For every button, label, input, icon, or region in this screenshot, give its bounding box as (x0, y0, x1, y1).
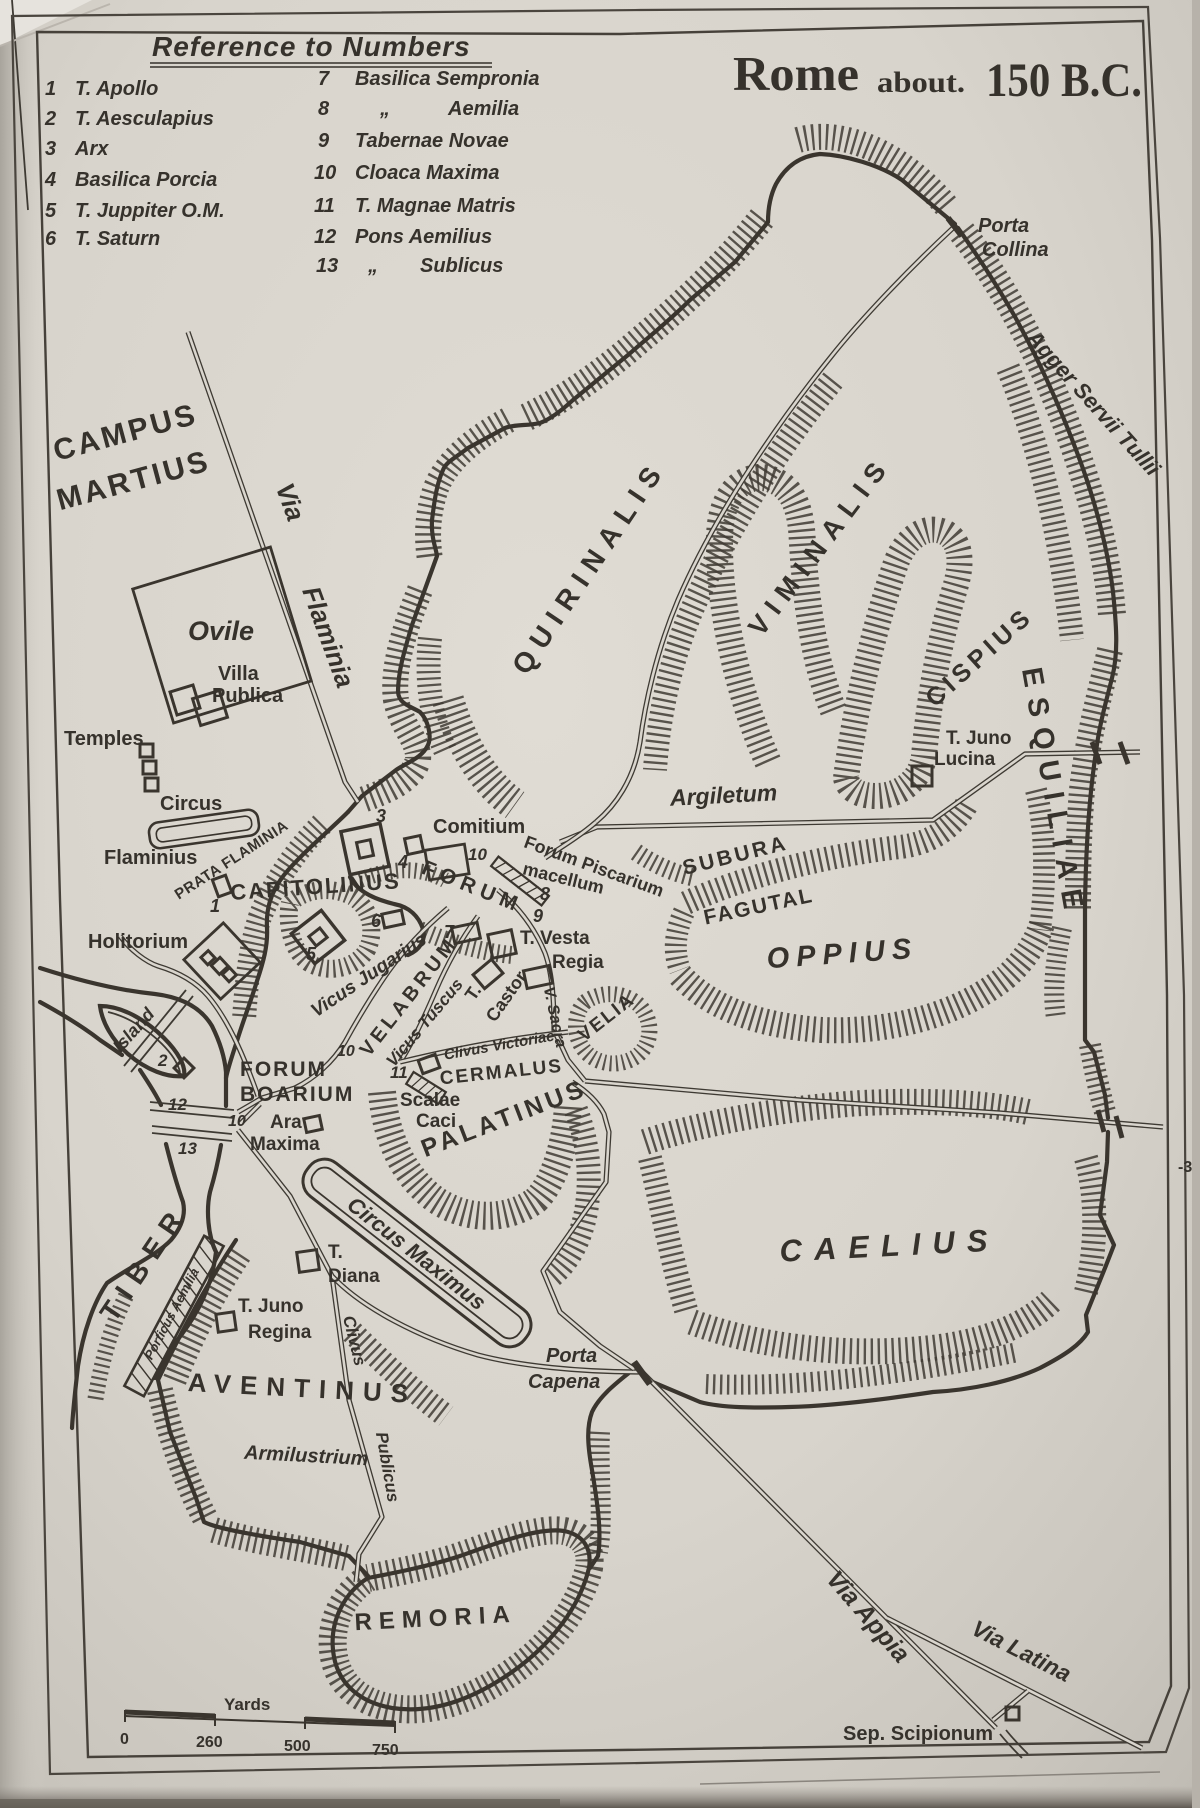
svg-text:Yards: Yards (224, 1695, 270, 1714)
svg-text:FORUM: FORUM (240, 1058, 327, 1081)
svg-text:Flaminius: Flaminius (104, 847, 197, 869)
svg-text:750: 750 (372, 1742, 399, 1759)
svg-text:Lucina: Lucina (934, 749, 996, 770)
svg-text:Ara: Ara (270, 1112, 302, 1133)
svg-text:150 B.C.: 150 B.C. (986, 54, 1142, 107)
svg-text:8: 8 (540, 884, 550, 904)
svg-text:-3: -3 (1178, 1159, 1192, 1176)
svg-text:Ovile: Ovile (188, 616, 254, 646)
svg-text:Collina: Collina (982, 239, 1049, 261)
svg-text:Sep. Scipionum: Sep. Scipionum (843, 1723, 993, 1745)
svg-text:Porta: Porta (546, 1345, 597, 1367)
svg-text:12: 12 (168, 1095, 187, 1114)
svg-text:Rome: Rome (733, 46, 859, 101)
svg-text:Regia: Regia (552, 952, 604, 973)
svg-text:Capena: Capena (528, 1371, 600, 1393)
svg-text:Scalae: Scalae (400, 1090, 460, 1111)
svg-text:T.: T. (328, 1242, 343, 1263)
svg-text:T. Juno: T. Juno (238, 1296, 303, 1317)
svg-text:10: 10 (337, 1043, 355, 1060)
svg-text:about.: about. (877, 66, 965, 99)
svg-text:6: 6 (371, 911, 382, 931)
svg-text:Temples: Temples (64, 728, 144, 750)
svg-text:5: 5 (306, 944, 317, 964)
svg-text:Holitorium: Holitorium (88, 931, 188, 953)
svg-text:Maxima: Maxima (250, 1134, 320, 1155)
svg-text:10: 10 (228, 1113, 246, 1130)
svg-text:0: 0 (120, 1731, 129, 1748)
svg-text:9: 9 (533, 906, 543, 926)
svg-text:Publica: Publica (212, 685, 284, 707)
svg-text:Regina: Regina (248, 1322, 312, 1343)
svg-text:10: 10 (468, 845, 487, 864)
svg-text:3: 3 (376, 806, 386, 826)
svg-text:500: 500 (284, 1738, 311, 1755)
svg-text:Circus: Circus (160, 793, 222, 815)
svg-text:Diana: Diana (328, 1266, 380, 1287)
svg-text:4: 4 (397, 852, 408, 872)
svg-text:260: 260 (196, 1734, 223, 1751)
svg-text:BOARIUM: BOARIUM (240, 1083, 354, 1106)
svg-text:3Arx: 3Arx (45, 138, 109, 160)
svg-text:Villa: Villa (218, 663, 260, 685)
svg-text:T. Juno: T. Juno (946, 728, 1011, 749)
svg-text:Comitium: Comitium (433, 816, 525, 838)
svg-text:13: 13 (178, 1139, 197, 1158)
svg-text:2: 2 (157, 1051, 168, 1070)
svg-text:Reference to Numbers: Reference to Numbers (152, 31, 471, 62)
svg-text:11: 11 (390, 1063, 408, 1082)
svg-text:Porta: Porta (978, 215, 1029, 237)
svg-text:T. Vesta: T. Vesta (520, 928, 590, 949)
svg-text:1: 1 (210, 896, 220, 916)
